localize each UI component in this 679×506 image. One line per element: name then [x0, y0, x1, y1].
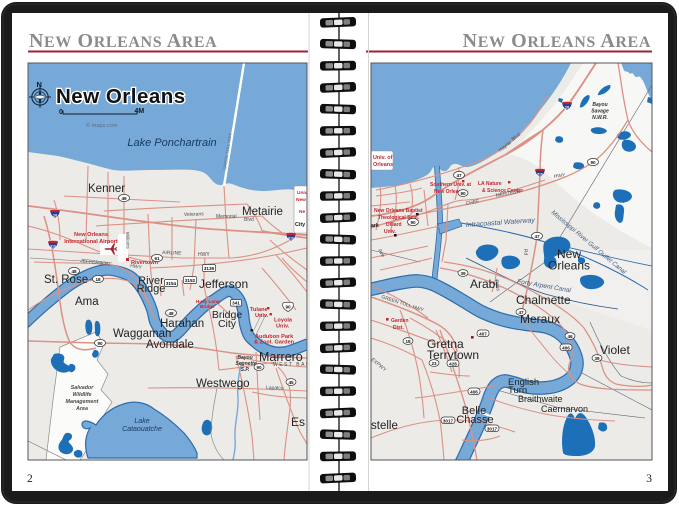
svg-text:39: 39 — [460, 271, 466, 276]
svg-text:© maps.com: © maps.com — [86, 122, 118, 129]
svg-text:90: 90 — [590, 160, 596, 165]
svg-text:International Airport: International Airport — [64, 239, 118, 245]
svg-text:Braithwaite: Braithwaite — [518, 394, 563, 404]
svg-text:St. Rose: St. Rose — [44, 274, 88, 286]
svg-text:407: 407 — [479, 332, 487, 337]
svg-text:AIRLINE: AIRLINE — [162, 250, 182, 257]
svg-text:90: 90 — [97, 341, 103, 346]
svg-text:Dillard: Dillard — [386, 222, 402, 228]
svg-text:Meraux: Meraux — [520, 312, 560, 326]
svg-text:Memorial: Memorial — [216, 214, 237, 220]
svg-text:47: 47 — [518, 310, 524, 315]
svg-text:Chasse: Chasse — [456, 414, 493, 426]
svg-text:Es: Es — [291, 415, 305, 429]
svg-text:Bayou: Bayou — [592, 102, 607, 108]
svg-text:4M: 4M — [135, 108, 145, 115]
svg-text:Savage: Savage — [591, 109, 609, 115]
svg-text:Williams: Williams — [125, 232, 131, 250]
svg-text:3152: 3152 — [185, 278, 196, 283]
svg-text:406: 406 — [470, 390, 478, 395]
svg-text:& Zool. Garden: & Zool. Garden — [254, 340, 295, 346]
svg-text:61: 61 — [154, 256, 160, 261]
svg-text:341: 341 — [232, 301, 240, 306]
svg-text:NEW ORLEANS AREA: NEW ORLEANS AREA — [29, 30, 217, 52]
svg-text:310: 310 — [50, 245, 56, 249]
svg-text:3017: 3017 — [487, 427, 498, 432]
svg-text:Westwego: Westwego — [196, 378, 249, 390]
svg-text:Garden: Garden — [391, 318, 409, 324]
svg-text:3139: 3139 — [204, 266, 215, 271]
svg-text:N.W.R.: N.W.R. — [592, 115, 608, 121]
svg-text:47: 47 — [456, 173, 462, 178]
svg-text:Area: Area — [75, 406, 88, 412]
svg-text:Univ: Univ — [297, 190, 308, 196]
svg-text:Caernarvon: Caernarvon — [541, 404, 588, 414]
svg-text:Chalmette: Chalmette — [516, 293, 571, 307]
svg-text:47: 47 — [534, 234, 540, 239]
svg-text:N: N — [37, 80, 42, 89]
svg-text:10: 10 — [53, 213, 57, 218]
svg-text:LA Nature: LA Nature — [478, 181, 502, 187]
svg-text:90: 90 — [410, 220, 416, 225]
svg-text:90: 90 — [285, 305, 291, 310]
svg-text:Ama: Ama — [75, 296, 99, 308]
svg-text:48: 48 — [168, 311, 174, 316]
svg-text:Salvador: Salvador — [71, 385, 95, 391]
svg-text:10: 10 — [565, 105, 569, 110]
svg-text:428: 428 — [449, 362, 457, 367]
svg-text:Rd: Rd — [522, 249, 529, 256]
svg-text:Southern Univ. at: Southern Univ. at — [430, 182, 471, 188]
svg-text:510: 510 — [537, 173, 543, 177]
svg-text:406: 406 — [562, 346, 570, 351]
svg-text:Ridge: Ridge — [137, 283, 166, 295]
svg-text:Univ.: Univ. — [255, 313, 269, 319]
svg-text:3154: 3154 — [166, 281, 177, 286]
svg-text:Ne: Ne — [299, 209, 305, 215]
svg-text:45: 45 — [288, 380, 294, 385]
svg-text:Veterans: Veterans — [184, 211, 204, 218]
svg-text:Kenner: Kenner — [88, 183, 125, 195]
svg-text:Violet: Violet — [600, 343, 630, 357]
svg-text:49: 49 — [121, 196, 127, 201]
svg-text:New Orleans: New Orleans — [74, 232, 108, 238]
svg-text:Lake: Lake — [134, 418, 149, 425]
svg-text:18: 18 — [405, 339, 411, 344]
svg-text:Cataouatche: Cataouatche — [122, 426, 162, 433]
svg-text:3017: 3017 — [443, 419, 454, 424]
svg-text:Jefferson: Jefferson — [199, 277, 248, 291]
svg-text:City: City — [218, 318, 237, 330]
svg-text:39: 39 — [594, 356, 600, 361]
svg-text:Orleans: Orleans — [548, 259, 590, 273]
svg-text:Management: Management — [66, 399, 99, 405]
svg-text:ark: ark — [371, 223, 379, 229]
svg-text:Avondale: Avondale — [146, 339, 194, 351]
svg-text:48: 48 — [71, 269, 77, 274]
svg-text:90: 90 — [256, 365, 262, 370]
svg-text:0: 0 — [59, 109, 63, 116]
svg-text:HWY: HWY — [198, 252, 210, 258]
svg-text:New Orleans Baptist: New Orleans Baptist — [374, 208, 423, 214]
svg-text:Dist.: Dist. — [393, 325, 404, 331]
svg-text:90: 90 — [460, 191, 466, 196]
svg-text:S.P.: S.P. — [241, 367, 250, 373]
svg-text:Lapalco: Lapalco — [266, 385, 284, 392]
svg-text:3: 3 — [646, 473, 652, 485]
svg-text:& Science Center: & Science Center — [482, 188, 523, 194]
svg-text:610: 610 — [288, 237, 294, 241]
svg-text:Lake Ponchartrain: Lake Ponchartrain — [127, 137, 216, 149]
svg-text:Bridge: Bridge — [200, 304, 215, 309]
svg-text:stelle: stelle — [371, 420, 398, 432]
svg-text:46: 46 — [567, 334, 573, 339]
svg-text:Wildlife: Wildlife — [72, 392, 91, 398]
svg-text:Orleans: Orleans — [373, 162, 393, 168]
svg-text:2: 2 — [27, 473, 33, 485]
svg-text:Univ. of: Univ. of — [373, 155, 393, 161]
svg-text:NEW ORLEANS AREA: NEW ORLEANS AREA — [463, 30, 651, 52]
svg-text:23: 23 — [431, 361, 437, 366]
svg-text:18: 18 — [95, 277, 101, 282]
svg-text:Blvd: Blvd — [244, 217, 254, 223]
svg-text:New Orleans: New Orleans — [56, 85, 186, 108]
svg-text:Univ.: Univ. — [276, 324, 290, 330]
